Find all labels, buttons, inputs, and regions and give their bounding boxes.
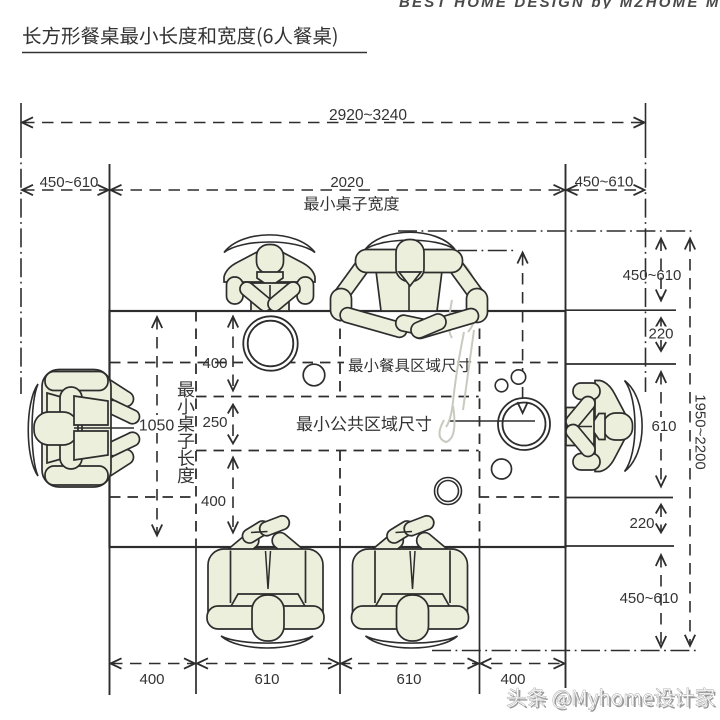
- svg-text:1050: 1050: [139, 418, 175, 435]
- svg-text:2920~3240: 2920~3240: [329, 107, 407, 124]
- svg-text:400: 400: [202, 355, 227, 372]
- svg-text:1950~2200: 1950~2200: [692, 394, 709, 470]
- svg-text:610: 610: [396, 671, 421, 688]
- svg-text:220: 220: [629, 515, 654, 532]
- svg-text:610: 610: [651, 418, 676, 435]
- svg-text:610: 610: [254, 671, 279, 688]
- svg-text:450~610: 450~610: [623, 267, 682, 284]
- svg-text:220: 220: [648, 326, 673, 343]
- svg-text:250: 250: [202, 414, 227, 431]
- svg-text:450~610: 450~610: [40, 174, 99, 191]
- svg-text:450~610: 450~610: [620, 590, 679, 607]
- svg-text:2020: 2020: [330, 174, 363, 191]
- svg-text:400: 400: [139, 671, 164, 688]
- svg-text:450~610: 450~610: [575, 174, 634, 191]
- svg-text:400: 400: [500, 671, 525, 688]
- svg-text:400: 400: [201, 493, 226, 510]
